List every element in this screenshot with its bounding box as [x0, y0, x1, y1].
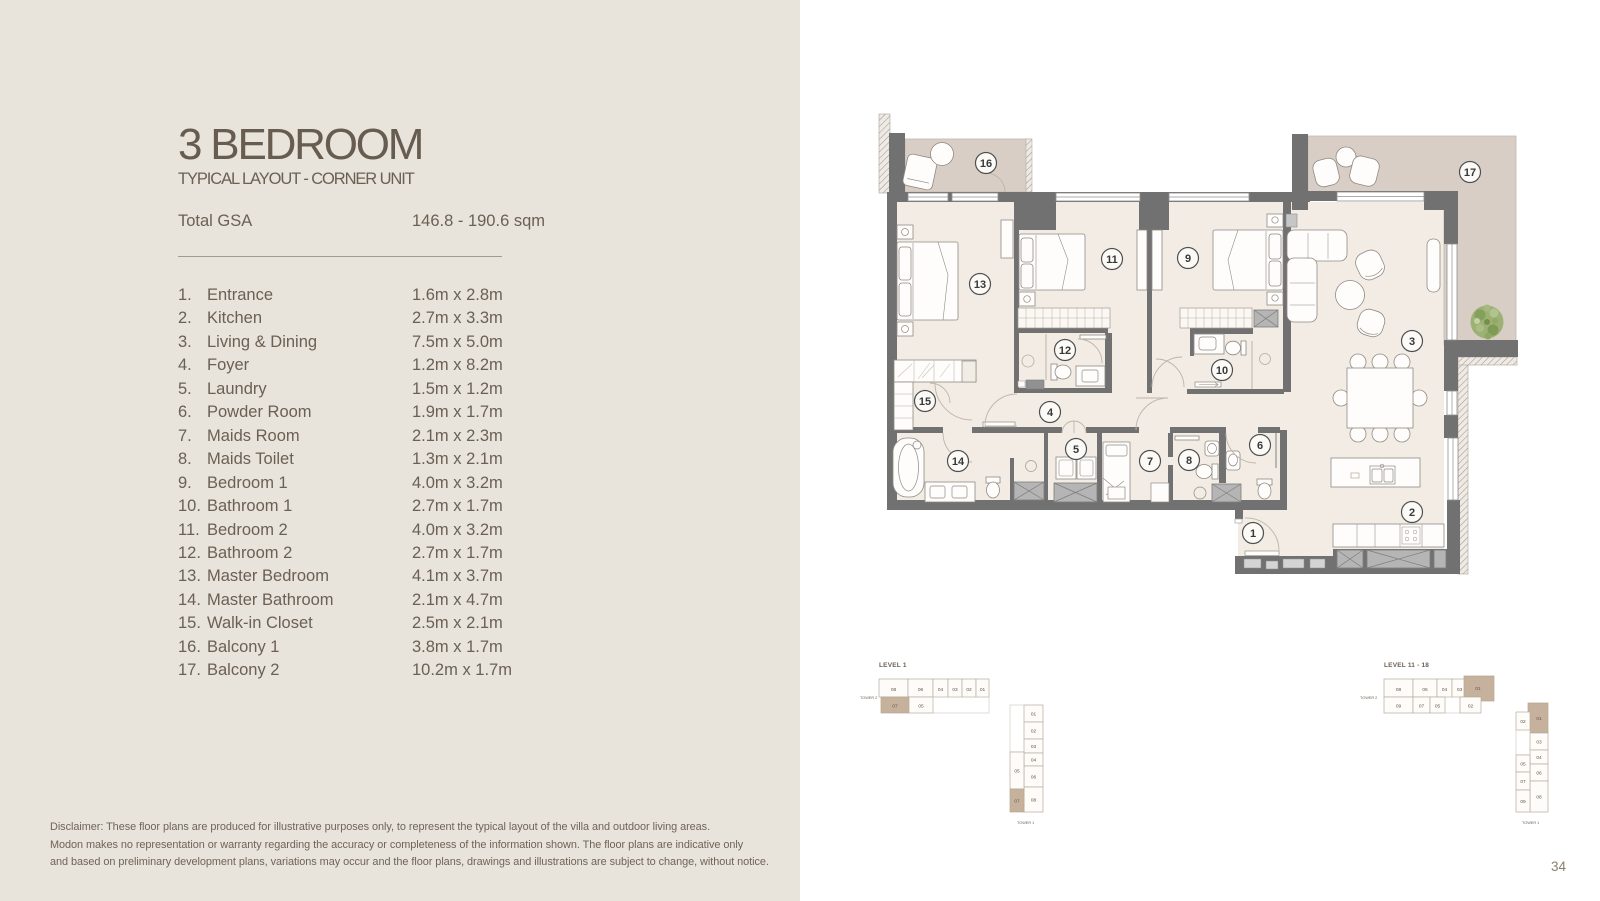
- svg-text:01: 01: [1031, 712, 1037, 718]
- svg-text:15: 15: [919, 396, 931, 408]
- svg-text:9: 9: [1185, 253, 1191, 265]
- svg-text:8: 8: [1186, 455, 1192, 467]
- svg-text:06: 06: [918, 687, 924, 693]
- svg-text:06: 06: [1422, 687, 1428, 693]
- svg-text:LEVEL 11 - 18: LEVEL 11 - 18: [1384, 662, 1429, 669]
- svg-text:04: 04: [1031, 758, 1037, 764]
- svg-text:LEVEL 1: LEVEL 1: [879, 662, 907, 669]
- svg-text:03: 03: [1536, 740, 1542, 746]
- svg-text:3: 3: [1409, 336, 1415, 348]
- svg-text:08: 08: [1396, 687, 1402, 693]
- svg-text:06: 06: [1536, 771, 1542, 777]
- svg-text:5: 5: [1073, 444, 1079, 456]
- svg-text:03: 03: [1031, 744, 1037, 750]
- svg-text:05: 05: [1520, 762, 1526, 768]
- svg-text:04: 04: [938, 687, 944, 693]
- svg-text:6: 6: [1257, 440, 1263, 452]
- svg-text:TOWER 2: TOWER 2: [860, 696, 877, 700]
- svg-text:10: 10: [1216, 365, 1228, 377]
- svg-text:1: 1: [1250, 528, 1256, 540]
- svg-text:09: 09: [1520, 799, 1526, 805]
- svg-text:03: 03: [1457, 687, 1463, 693]
- svg-text:TOWER 2: TOWER 2: [1360, 696, 1377, 700]
- svg-text:02: 02: [966, 687, 972, 693]
- svg-text:04: 04: [1442, 687, 1448, 693]
- svg-text:05: 05: [1435, 704, 1441, 710]
- svg-text:01: 01: [980, 687, 986, 693]
- svg-text:09: 09: [1396, 704, 1402, 710]
- svg-text:08: 08: [891, 687, 897, 693]
- svg-text:01: 01: [1536, 716, 1542, 722]
- svg-text:03: 03: [952, 687, 958, 693]
- svg-text:02: 02: [1031, 729, 1037, 735]
- svg-text:07: 07: [1014, 799, 1020, 805]
- svg-text:01: 01: [1475, 686, 1481, 692]
- svg-text:06: 06: [1031, 775, 1037, 781]
- svg-text:02: 02: [1520, 719, 1526, 725]
- svg-text:07: 07: [1419, 704, 1425, 710]
- svg-text:05: 05: [918, 704, 924, 710]
- svg-text:2: 2: [1409, 507, 1415, 519]
- svg-text:TOWER 1: TOWER 1: [1017, 821, 1034, 825]
- svg-text:05: 05: [1014, 769, 1020, 775]
- svg-text:TOWER 1: TOWER 1: [1522, 821, 1539, 825]
- svg-text:07: 07: [1520, 779, 1526, 785]
- svg-text:07: 07: [892, 704, 898, 710]
- svg-text:02: 02: [1468, 704, 1474, 710]
- svg-text:08: 08: [1031, 798, 1037, 804]
- svg-text:16: 16: [980, 158, 992, 170]
- svg-text:17: 17: [1464, 167, 1476, 179]
- svg-text:13: 13: [974, 279, 986, 291]
- svg-text:14: 14: [952, 456, 965, 468]
- svg-text:08: 08: [1536, 795, 1542, 801]
- svg-text:7: 7: [1147, 456, 1153, 468]
- svg-text:4: 4: [1047, 407, 1054, 419]
- svg-text:11: 11: [1106, 254, 1118, 266]
- svg-text:12: 12: [1059, 345, 1071, 357]
- svg-text:04: 04: [1536, 755, 1542, 761]
